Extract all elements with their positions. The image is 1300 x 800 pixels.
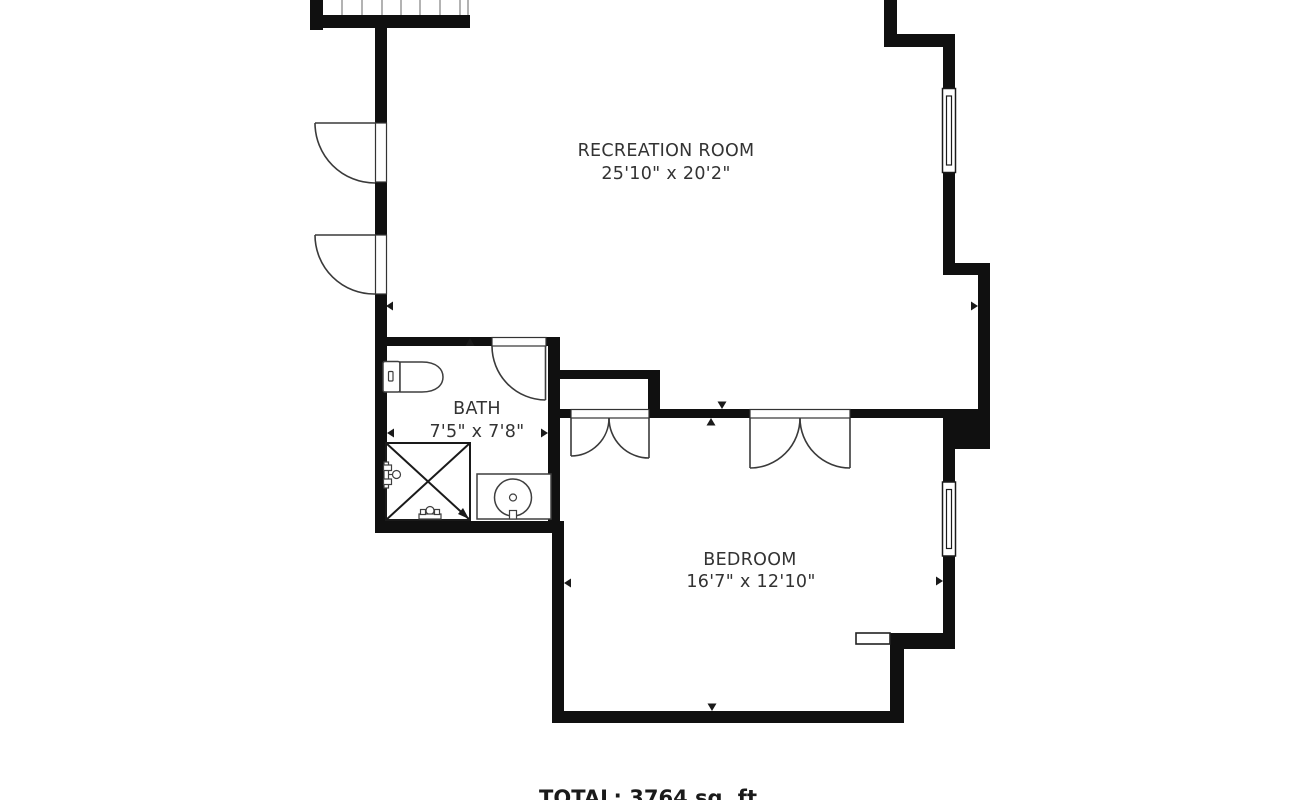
arrow-rec-right — [971, 302, 978, 311]
west-door-upper — [315, 123, 387, 183]
arrow-bath-right — [541, 429, 548, 438]
bedroom-dimensions: 16'7" x 12'10" — [686, 572, 815, 592]
arrow-rec-left — [386, 302, 393, 311]
staircase — [342, 0, 468, 16]
west-door-lower — [315, 235, 387, 294]
total-area-label: TOTAL: 3764 sq. ft — [539, 786, 757, 800]
wall-ledge — [856, 633, 890, 644]
window-recreation-east — [943, 89, 956, 173]
arrow-bed-right — [936, 577, 943, 586]
bedroom-label: BEDROOM — [703, 550, 796, 570]
arrow-bed-top — [707, 418, 716, 426]
floor-plan-svg: RECREATION ROOM 25'10" x 20'2" BATH 7'5"… — [0, 0, 1300, 800]
arrow-bath-left — [387, 429, 394, 438]
arrow-bed-bottom — [708, 704, 717, 712]
bath-dimensions: 7'5" x 7'8" — [429, 422, 524, 442]
floor-plan-canvas: RECREATION ROOM 25'10" x 20'2" BATH 7'5"… — [0, 0, 1300, 800]
shower — [384, 443, 471, 520]
window-bedroom-east — [943, 482, 956, 556]
bath-label: BATH — [453, 399, 501, 419]
arrow-bed-left — [564, 579, 571, 588]
bath-door — [492, 338, 546, 401]
dimension-arrows — [386, 302, 978, 712]
recreation-room-dimensions: 25'10" x 20'2" — [601, 164, 730, 184]
closet-door-left — [571, 410, 649, 459]
shower-valve-icon — [384, 462, 401, 488]
shower-drain-icon — [419, 507, 441, 520]
toilet — [383, 362, 443, 393]
recreation-room-label: RECREATION ROOM — [578, 141, 755, 161]
closet-door-right — [750, 410, 850, 469]
sink-vanity — [477, 474, 551, 519]
arrow-rec-bottom — [718, 402, 727, 410]
